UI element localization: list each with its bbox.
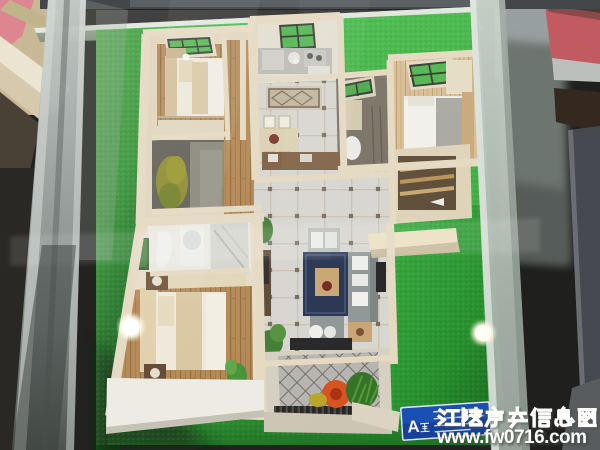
- svg-text:A: A: [407, 417, 421, 437]
- svg-text:www.fw0716.com: www.fw0716.com: [436, 427, 587, 448]
